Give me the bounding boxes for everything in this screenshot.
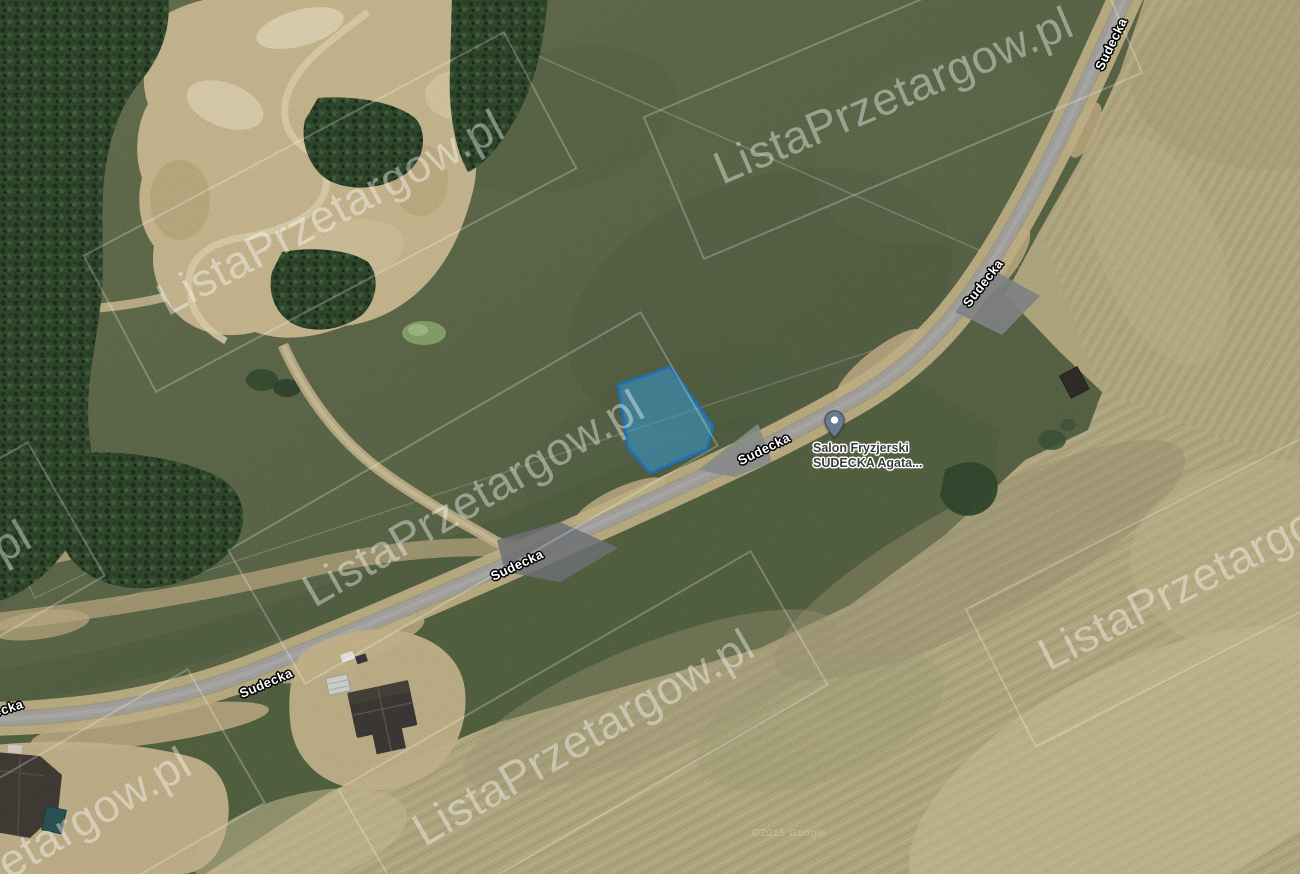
- place-pin-icon[interactable]: [824, 410, 845, 438]
- place-marker[interactable]: Salon Fryzjerski SUDECKA Agata...: [0, 0, 1300, 874]
- map-viewport[interactable]: ©2015 Google ListaPrzetargow.plListaPrze…: [0, 0, 1300, 874]
- place-name-line2: SUDECKA Agata...: [813, 456, 923, 471]
- place-name-line1: Salon Fryzjerski: [813, 441, 923, 456]
- place-label[interactable]: Salon Fryzjerski SUDECKA Agata...: [813, 441, 923, 470]
